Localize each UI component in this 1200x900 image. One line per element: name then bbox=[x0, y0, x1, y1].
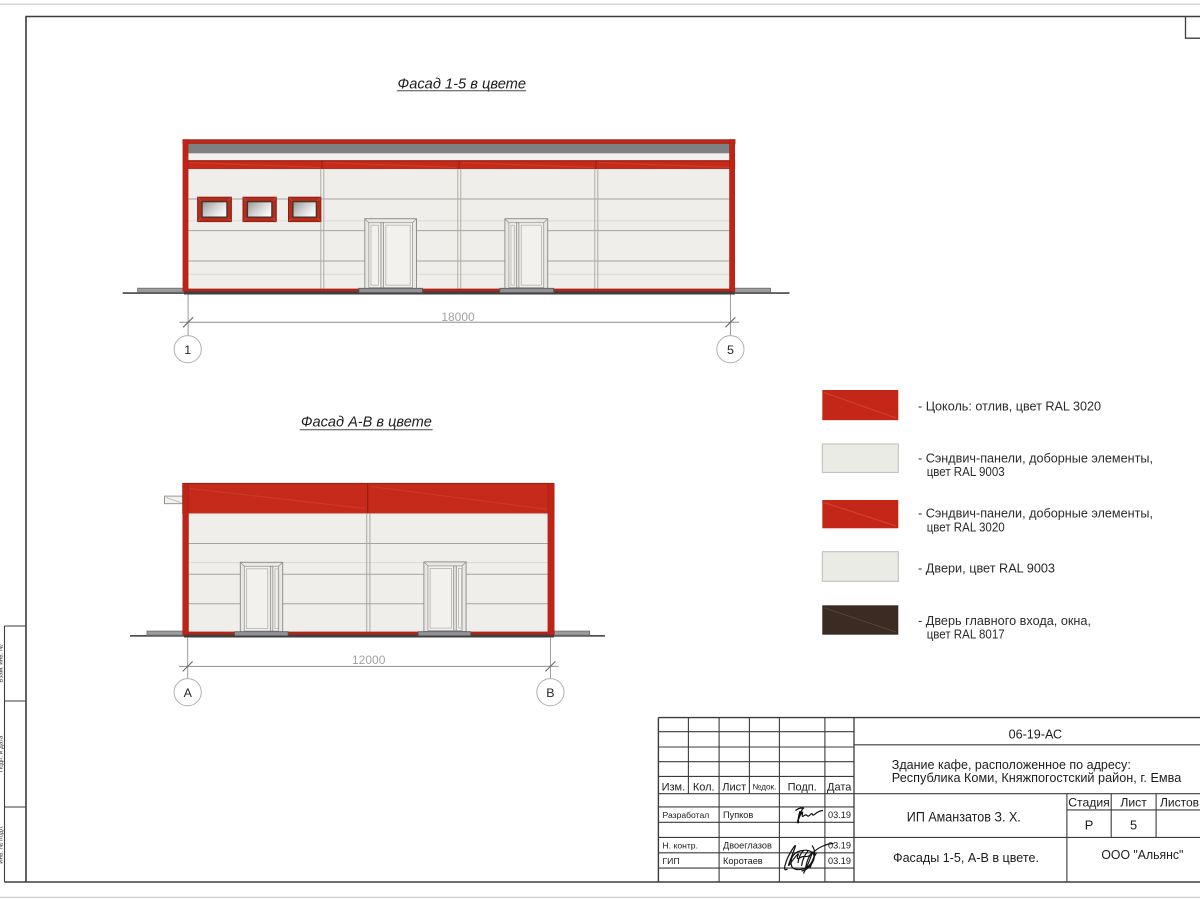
svg-text:Разработал: Разработал bbox=[663, 810, 710, 820]
svg-text:Коротаев: Коротаев bbox=[723, 856, 763, 866]
svg-text:Фасад 1-5 в цвете: Фасад 1-5 в цвете bbox=[398, 76, 527, 92]
svg-text:12000: 12000 bbox=[352, 653, 386, 667]
svg-text:- Сэндвич-панели, доборные эле: - Сэндвич-панели, доборные элементы, bbox=[918, 507, 1153, 521]
svg-text:А: А bbox=[184, 686, 193, 700]
svg-text:Двоеглазов: Двоеглазов bbox=[723, 841, 772, 851]
svg-text:- Цоколь: отлив, цвет RAL 3020: - Цоколь: отлив, цвет RAL 3020 bbox=[918, 399, 1101, 413]
svg-text:03.19: 03.19 bbox=[828, 841, 851, 851]
svg-text:Н. контр.: Н. контр. bbox=[663, 841, 698, 851]
svg-text:18000: 18000 bbox=[441, 310, 475, 324]
svg-text:Фасад А-В в цвете: Фасад А-В в цвете bbox=[301, 414, 432, 430]
svg-text:Фасады 1-5, А-В в цвете.: Фасады 1-5, А-В в цвете. bbox=[893, 850, 1039, 865]
svg-text:Инв. № подл.: Инв. № подл. bbox=[0, 825, 5, 864]
svg-text:цвет RAL 3020: цвет RAL 3020 bbox=[927, 520, 1005, 534]
svg-text:03.19: 03.19 bbox=[828, 856, 851, 866]
svg-text:06-19-АС: 06-19-АС bbox=[1009, 726, 1063, 741]
svg-text:ООО "Альянс": ООО "Альянс" bbox=[1101, 847, 1183, 862]
svg-text:1: 1 bbox=[184, 343, 191, 357]
svg-text:03.19: 03.19 bbox=[828, 810, 851, 820]
svg-text:- Двери, цвет RAL 9003: - Двери, цвет RAL 9003 bbox=[918, 561, 1055, 575]
svg-text:№док.: №док. bbox=[752, 783, 776, 792]
svg-text:цвет RAL 8017: цвет RAL 8017 bbox=[927, 627, 1005, 641]
svg-text:цвет RAL 9003: цвет RAL 9003 bbox=[927, 465, 1005, 479]
svg-text:В: В bbox=[546, 686, 554, 700]
svg-text:Взам. инв. №: Взам. инв. № bbox=[0, 644, 5, 683]
svg-text:Подп.: Подп. bbox=[788, 781, 817, 793]
svg-text:5: 5 bbox=[727, 343, 734, 357]
svg-text:5: 5 bbox=[1130, 818, 1137, 833]
svg-text:- Сэндвич-панели, доборные эле: - Сэндвич-панели, доборные элементы, bbox=[918, 452, 1153, 466]
svg-text:Изм.: Изм. bbox=[662, 781, 686, 793]
svg-text:Подп. и дата: Подп. и дата bbox=[0, 735, 5, 772]
svg-text:- Дверь главного входа, окна,: - Дверь главного входа, окна, bbox=[918, 614, 1091, 628]
svg-text:Стадия: Стадия bbox=[1068, 795, 1110, 809]
svg-text:Дата: Дата bbox=[827, 781, 852, 793]
svg-text:ГИП: ГИП bbox=[663, 856, 680, 866]
svg-text:Р: Р bbox=[1085, 818, 1094, 833]
svg-text:Лист: Лист bbox=[1120, 795, 1147, 809]
svg-text:Пупков: Пупков bbox=[723, 810, 753, 820]
svg-text:ИП Аманзатов З. Х.: ИП Аманзатов З. Х. bbox=[907, 809, 1021, 824]
svg-text:Лист: Лист bbox=[722, 781, 746, 793]
svg-text:Республика Коми, Княжпогостски: Республика Коми, Княжпогостский район, г… bbox=[892, 770, 1182, 785]
svg-text:Листов: Листов bbox=[1160, 795, 1199, 809]
svg-text:Кол.: Кол. bbox=[693, 781, 715, 793]
